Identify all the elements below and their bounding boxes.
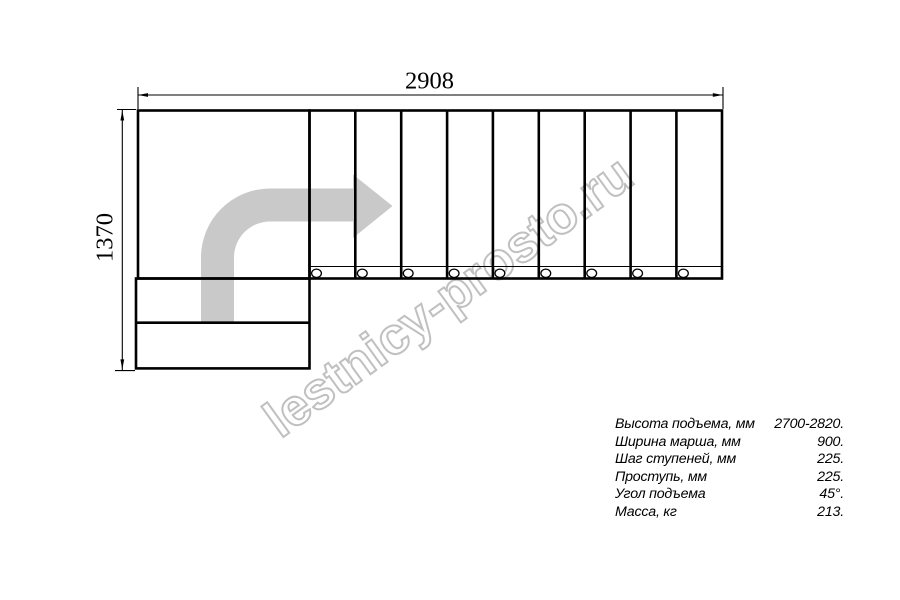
- svg-text:2908: 2908: [405, 67, 454, 94]
- svg-text:1370: 1370: [92, 213, 119, 262]
